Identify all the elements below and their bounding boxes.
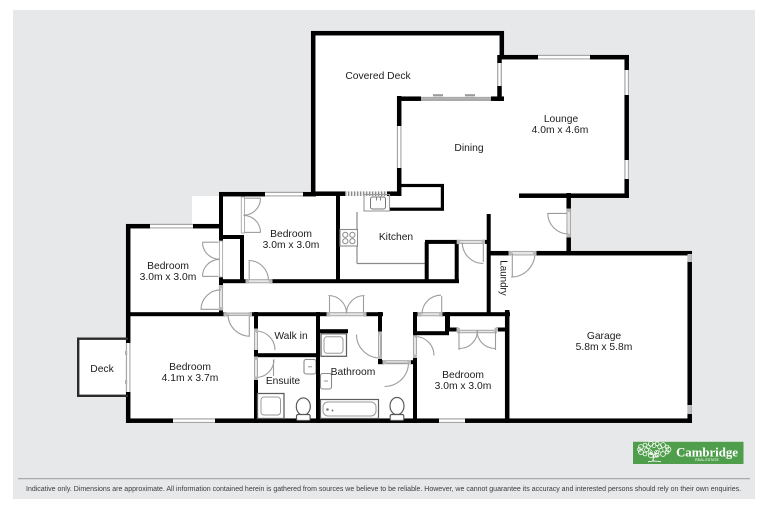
svg-text:Kitchen: Kitchen [379,232,414,243]
svg-text:Dining: Dining [454,143,483,154]
svg-text:4.1m x 3.7m: 4.1m x 3.7m [162,373,219,384]
svg-text:REAL ESTATE: REAL ESTATE [695,458,719,462]
svg-text:Bedroom: Bedroom [147,261,189,272]
svg-text:Deck: Deck [90,364,114,375]
svg-text:Walk in: Walk in [274,331,308,342]
svg-text:4.0m x 4.6m: 4.0m x 4.6m [532,125,589,136]
svg-text:Bathroom: Bathroom [331,367,376,378]
svg-text:3.0m x 3.0m: 3.0m x 3.0m [435,381,492,392]
svg-text:Lounge: Lounge [544,114,579,125]
svg-text:Laundry: Laundry [498,260,509,296]
svg-text:Bedroom: Bedroom [270,229,312,240]
svg-text:Indicative only. Dimensions ar: Indicative only. Dimensions are approxim… [26,486,741,493]
svg-text:Ensuite: Ensuite [266,376,301,387]
svg-text:Garage: Garage [587,331,622,342]
svg-text:5.8m x 5.8m: 5.8m x 5.8m [576,342,633,353]
svg-text:Covered Deck: Covered Deck [345,71,411,82]
svg-text:Bedroom: Bedroom [169,362,211,373]
svg-text:Bedroom: Bedroom [442,370,484,381]
svg-text:3.0m x 3.0m: 3.0m x 3.0m [140,272,197,283]
svg-text:3.0m x 3.0m: 3.0m x 3.0m [263,240,320,251]
